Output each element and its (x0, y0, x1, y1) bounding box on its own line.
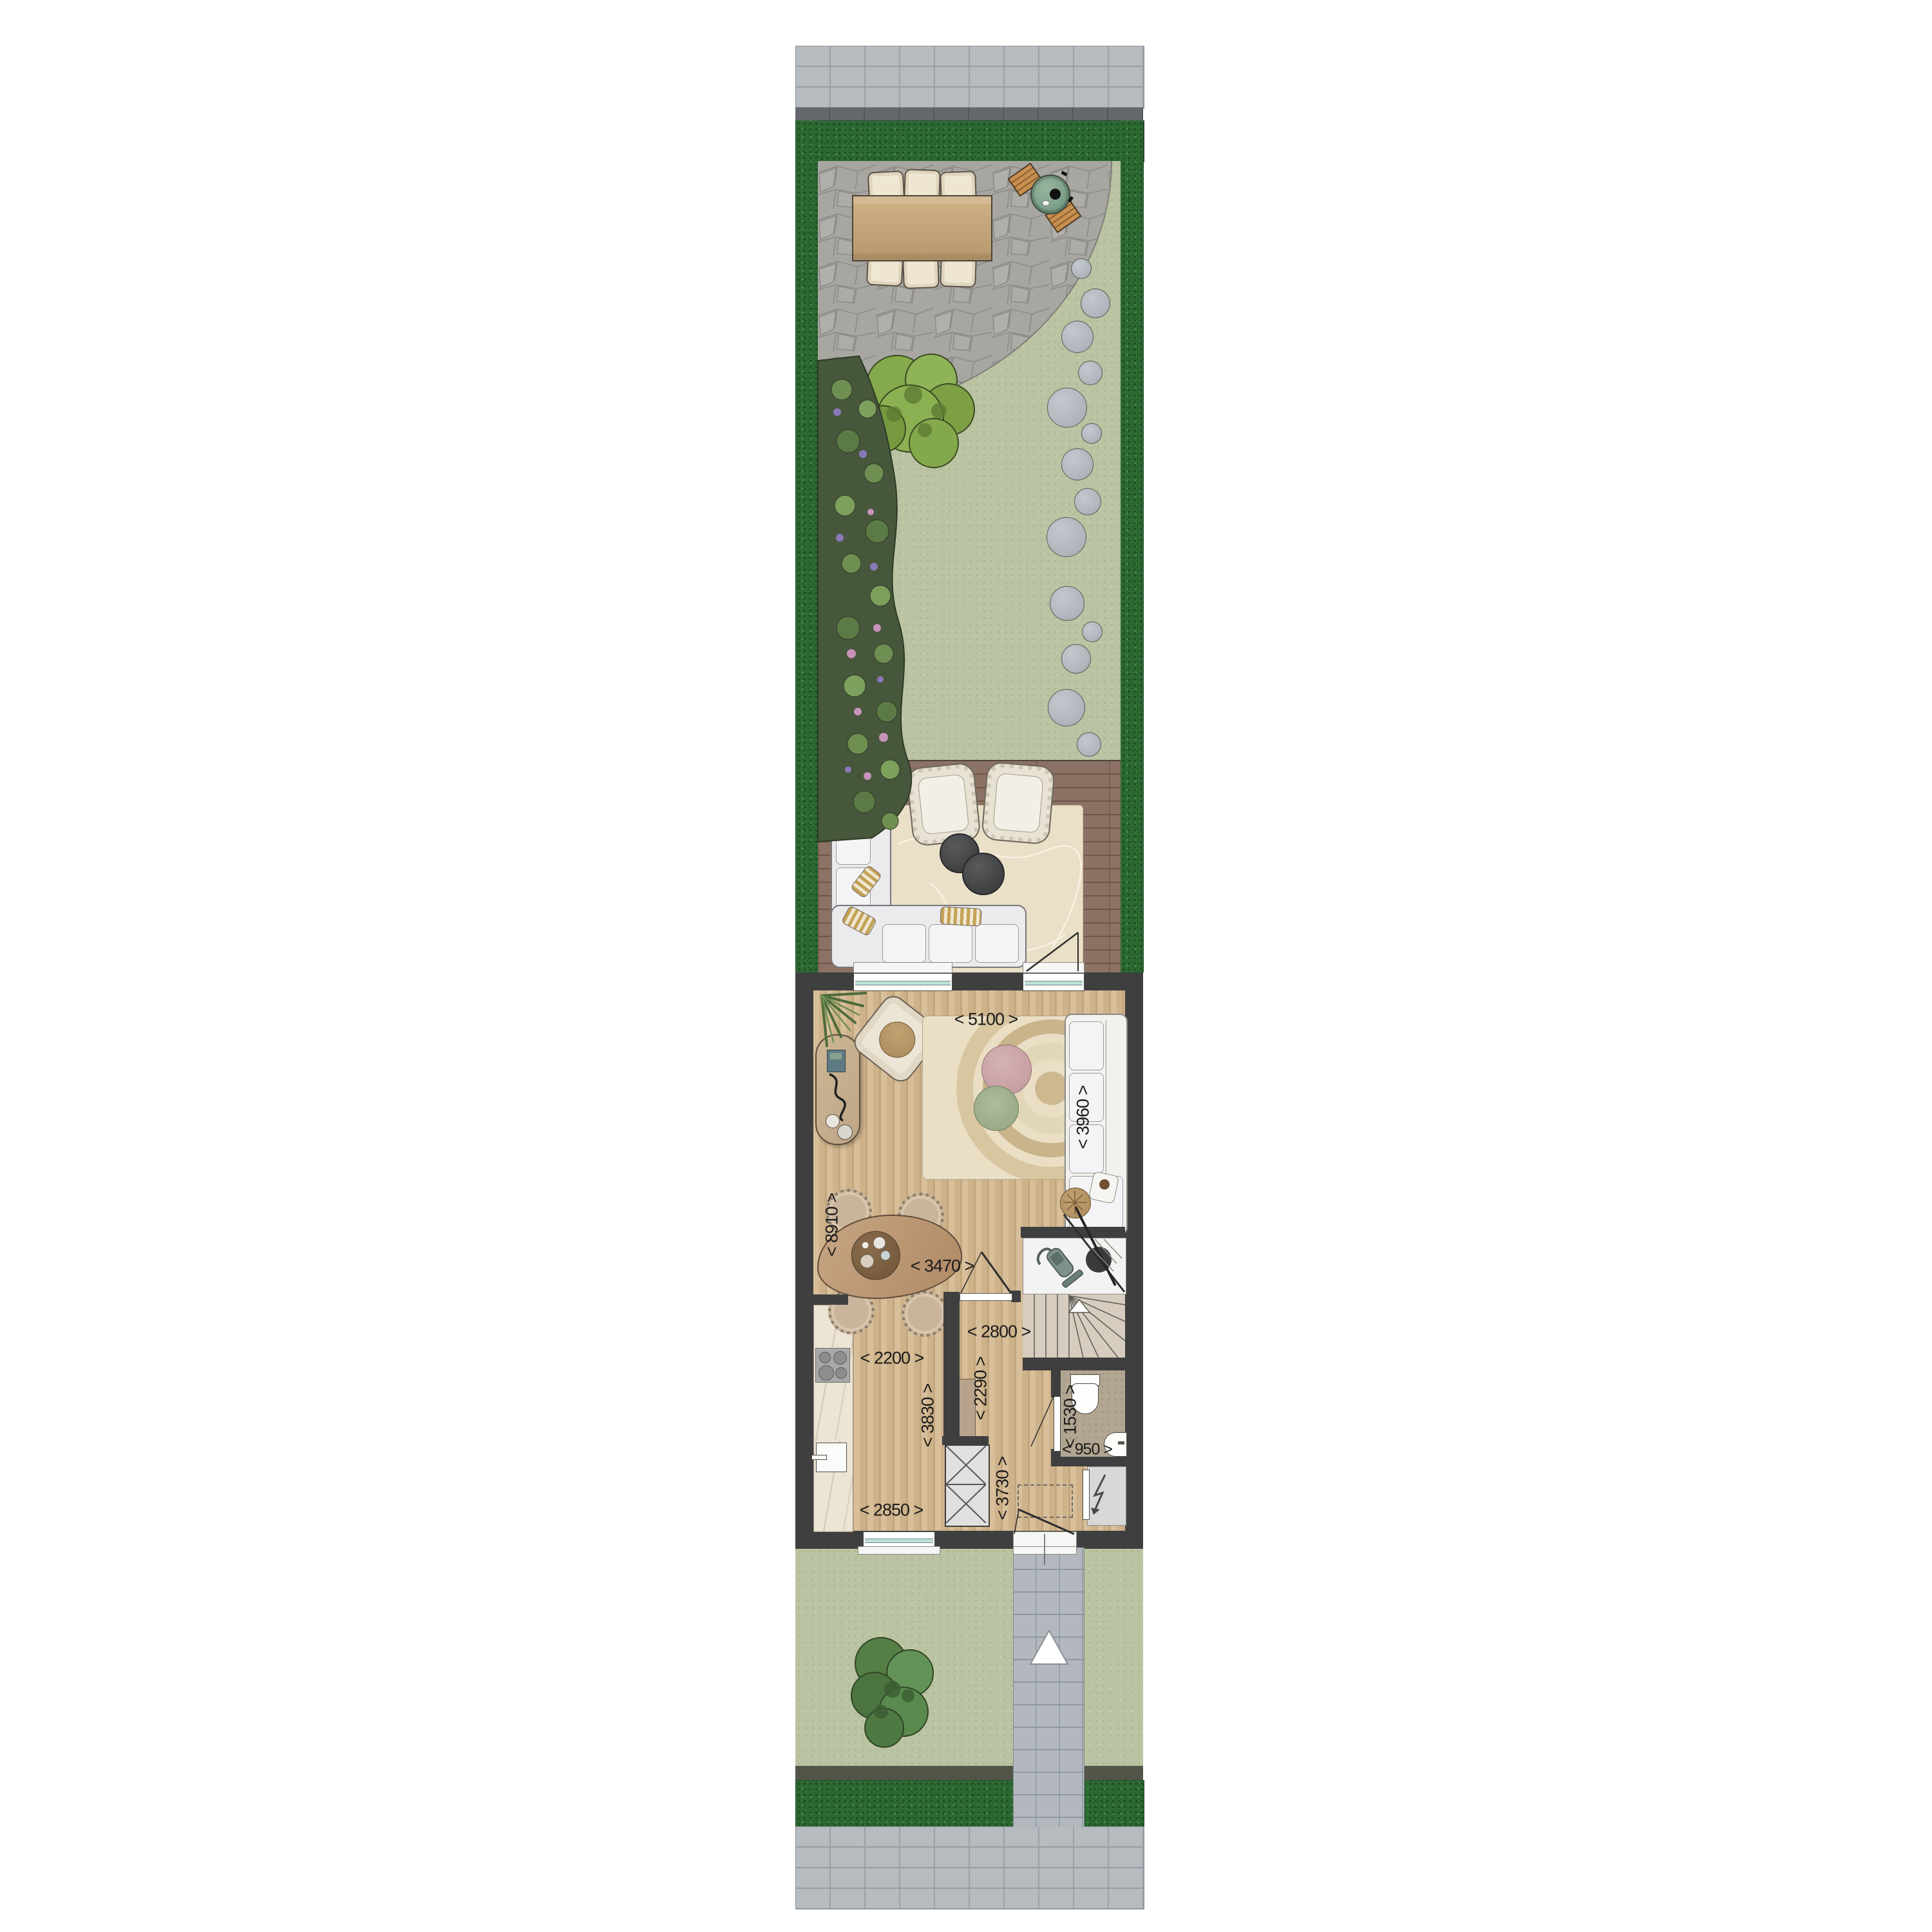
dimension-label-2200: < 2200 > (860, 1349, 924, 1368)
deck-lounge-chair (907, 763, 980, 846)
tall-cabinet (945, 1444, 990, 1527)
front-kitchen-window-sill (858, 1546, 940, 1555)
toilet-door-leaf (1054, 1396, 1061, 1452)
hedge-right-border (1121, 120, 1144, 972)
dining-chair (902, 1291, 948, 1337)
dimension-label-5100: < 5100 > (954, 1010, 1018, 1030)
sofa-back-line (1106, 1020, 1106, 1175)
cup (860, 1254, 875, 1269)
meter-cupboard-door-leaf (1083, 1470, 1090, 1520)
decor-bowl (837, 1124, 853, 1140)
washbasin-tap (1118, 1441, 1124, 1444)
dimension-label-2290: < 2290 > (971, 1357, 991, 1421)
stepping-stone (1046, 517, 1086, 557)
stepping-stone (1061, 644, 1091, 674)
hall-door-opening (960, 1293, 1012, 1301)
burner-icon (835, 1367, 847, 1379)
cup (861, 1241, 869, 1249)
dimension-label-3960: < 3960 > (1074, 1086, 1094, 1150)
stepping-stone (1078, 361, 1103, 385)
dimension-label-2800: < 2800 > (967, 1322, 1031, 1342)
toilet-left-wall (1051, 1370, 1061, 1397)
lounge-chair-seat (918, 773, 970, 835)
sofa-cushion (929, 924, 972, 963)
kitchen-sink (816, 1443, 847, 1472)
burner-icon (819, 1352, 831, 1363)
stepping-stone (1081, 289, 1110, 318)
dimension-label-3730: < 3730 > (993, 1457, 1013, 1520)
cabinet-wall-stub (942, 1436, 989, 1445)
stepping-stone (1061, 321, 1094, 353)
dimension-label-950: < 950 > (1062, 1441, 1112, 1459)
top-curb (795, 108, 1143, 122)
front-hedge-right (1081, 1780, 1144, 1828)
stepping-stone (1082, 621, 1103, 642)
stepping-stone (1061, 448, 1094, 480)
stepping-stone (1074, 488, 1101, 515)
stepping-stone (1048, 689, 1085, 726)
site-plan-canvas: < 5100 > < 3960 > < 8910 > < 3470 > < 28… (0, 0, 1932, 1932)
book-page (830, 1053, 842, 1059)
lounge-chair-seat (992, 773, 1043, 833)
stepping-stone (1071, 258, 1092, 279)
bbq-label-dot (1042, 200, 1050, 206)
front-garden-lawn (795, 1548, 1143, 1781)
sink-tap (811, 1455, 827, 1460)
striped-pillow (841, 905, 877, 936)
deck-sofa-horizontal (831, 905, 1027, 968)
kitchen-counter (813, 1305, 853, 1532)
sofa-cushion (975, 924, 1019, 963)
staircase (1023, 1294, 1125, 1358)
rear-window (853, 973, 952, 991)
dimension-label-8910: < 8910 > (822, 1193, 842, 1257)
book (827, 1050, 846, 1072)
bottom-sidewalk-paving (795, 1826, 1144, 1909)
sofa-seat-cushion (1069, 1021, 1104, 1070)
rear-window-sill (853, 962, 952, 973)
back-hedge-top (795, 120, 1144, 162)
hall-partition-wall (943, 1292, 960, 1441)
meter-cupboard-floor (1087, 1466, 1126, 1526)
hall-dashed-hatch (1018, 1484, 1073, 1518)
sofa-cushion (836, 821, 871, 865)
front-path (1013, 1548, 1084, 1827)
stepping-stone (1081, 423, 1102, 444)
deck-coffee-table (962, 853, 1005, 895)
hedge-left-border (795, 120, 819, 972)
stair-toilet-wall (1023, 1358, 1125, 1370)
burner-icon (819, 1365, 834, 1381)
bbq-vent-hole (1050, 189, 1061, 200)
top-sidewalk-paving (795, 46, 1144, 109)
dimension-label-3470: < 3470 > (911, 1256, 974, 1276)
patio-dining-table (852, 195, 992, 261)
cup (873, 1236, 886, 1249)
kitchen-wall-stub (813, 1294, 848, 1305)
stepping-stone (1047, 388, 1087, 428)
dimension-label-1530: < 1530 > (1061, 1385, 1081, 1449)
sideboard (815, 1034, 860, 1145)
dimension-label-3830: < 3830 > (918, 1384, 938, 1448)
cup (880, 1250, 891, 1261)
bbq-kamado-grill (1030, 175, 1070, 214)
side-table-green (974, 1086, 1019, 1131)
dimension-label-2850: < 2850 > (860, 1501, 923, 1520)
rear-garden-door (1023, 973, 1084, 991)
floor-lamp-base (1086, 1247, 1112, 1273)
burner-icon (833, 1351, 847, 1365)
decor-bowl (826, 1114, 840, 1128)
armchair-cushion (872, 1014, 923, 1065)
hall-door-post (1011, 1291, 1021, 1302)
cooktop (815, 1348, 850, 1383)
front-door-step (1013, 1546, 1077, 1555)
stepping-stone (1050, 586, 1084, 621)
wood-stool (1060, 1188, 1091, 1218)
under-stair-closet (1023, 1238, 1126, 1294)
stair-closet-wall (1021, 1227, 1125, 1238)
deck-lounge-chair (982, 762, 1054, 844)
pillow-dot (1099, 1179, 1111, 1191)
striped-pillow (940, 906, 981, 926)
rear-door-sill (1023, 962, 1084, 973)
stepping-stone (1077, 732, 1101, 757)
front-hedge-left (795, 1780, 1014, 1828)
sofa-cushion (882, 924, 926, 963)
table-centerpiece (849, 1229, 902, 1282)
